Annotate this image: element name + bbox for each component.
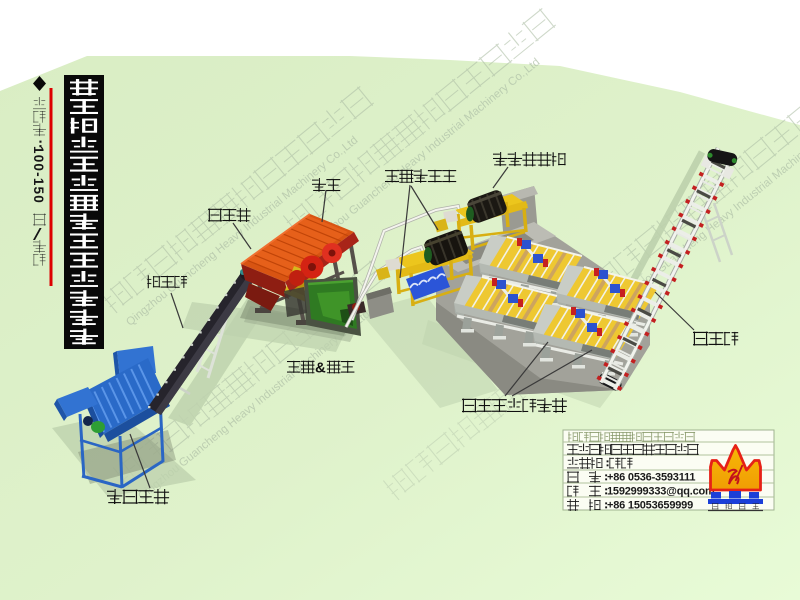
svg-text:1592999333@qq.com: 1592999333@qq.com (607, 486, 715, 498)
svg-text:100-150: 100-150 (31, 146, 46, 204)
svg-text:+86 0536-3593111: +86 0536-3593111 (607, 472, 695, 484)
svg-text:+86 15053659999: +86 15053659999 (607, 500, 693, 512)
svg-text:&: & (315, 360, 326, 376)
